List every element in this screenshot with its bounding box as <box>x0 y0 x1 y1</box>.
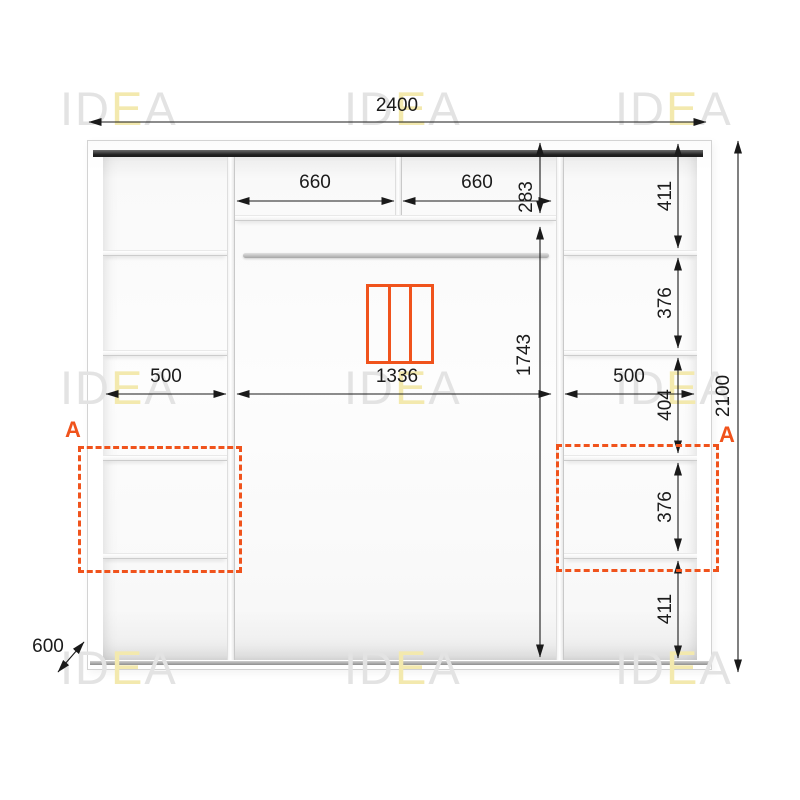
dim-label-right-section-5: 411 <box>655 594 677 624</box>
sliding-door-panel <box>369 287 388 361</box>
dim-label-total-height: 2100 <box>713 375 735 417</box>
brand-watermark: IDEA <box>344 644 462 691</box>
brand-watermark: IDEA <box>60 644 178 691</box>
shelf-center-top <box>235 215 556 221</box>
sliding-door-panel <box>409 287 431 361</box>
dim-label-top-left-660: 660 <box>299 172 331 194</box>
brand-watermark: IDEA <box>615 85 733 132</box>
brand-watermark: IDEA <box>60 85 178 132</box>
dim-label-1743: 1743 <box>514 334 536 376</box>
dim-label-left-500: 500 <box>150 366 182 388</box>
highlight-zone-right <box>556 444 719 572</box>
shelf-right-1 <box>564 250 697 256</box>
partition-left <box>227 157 235 660</box>
brand-watermark: IDEA <box>615 644 733 691</box>
dim-label-total-width: 2400 <box>376 95 418 117</box>
wardrobe-dimension-diagram: IDEA IDEA IDEA IDEA IDEA IDEA IDEA IDEA … <box>0 0 800 800</box>
dim-label-top-right-660: 660 <box>461 172 493 194</box>
dim-label-283: 283 <box>516 181 538 213</box>
dim-label-1336: 1336 <box>376 366 418 388</box>
sliding-door-top-track <box>93 150 703 157</box>
sliding-door-panel <box>388 287 410 361</box>
partition-right <box>556 157 564 660</box>
dim-label-right-section-2: 376 <box>655 287 677 319</box>
dim-label-right-section-1: 411 <box>655 181 677 211</box>
section-marker-a-left: A <box>65 417 81 443</box>
shelf-left-2 <box>103 350 227 356</box>
dim-label-right-500: 500 <box>613 366 645 388</box>
highlight-zone-left <box>78 446 242 573</box>
shelf-left-1 <box>103 250 227 256</box>
section-marker-a-right: A <box>719 422 735 448</box>
hanging-rod <box>243 253 549 258</box>
shelf-right-2 <box>564 350 697 356</box>
partition-center-top <box>395 157 402 217</box>
dim-label-depth-600: 600 <box>32 636 64 658</box>
sliding-doors-icon <box>366 284 434 364</box>
dim-label-right-section-3: 404 <box>655 389 677 421</box>
